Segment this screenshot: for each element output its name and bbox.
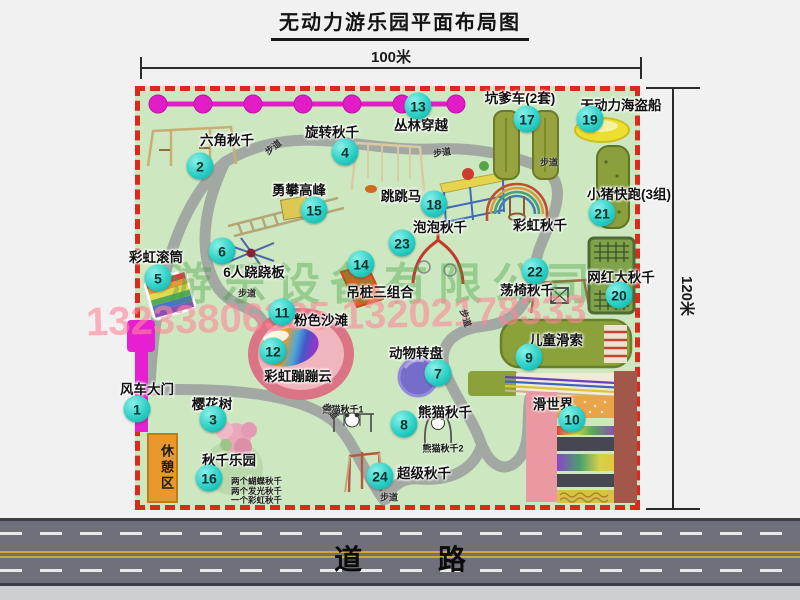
title-wrap: 无动力游乐园平面布局图 (0, 6, 800, 41)
road-shoulder (0, 586, 800, 600)
park-layout-map: 无动力游乐园平面布局图 100米 120米 (0, 0, 800, 600)
dimension-line-right (672, 88, 674, 510)
road-label: 道 路 (0, 538, 800, 578)
park-boundary (135, 86, 640, 510)
road-lane-dashes (0, 532, 800, 535)
height-dimension-label: 120米 (676, 266, 696, 326)
width-dimension-label: 100米 (140, 46, 642, 67)
page-title: 无动力游乐园平面布局图 (271, 6, 529, 41)
road: 道 路 (0, 518, 800, 586)
rest-area: 休憩区 (147, 433, 178, 503)
dimension-tick (646, 87, 700, 89)
dimension-tick (646, 508, 700, 510)
dimension-line-top (140, 67, 642, 69)
